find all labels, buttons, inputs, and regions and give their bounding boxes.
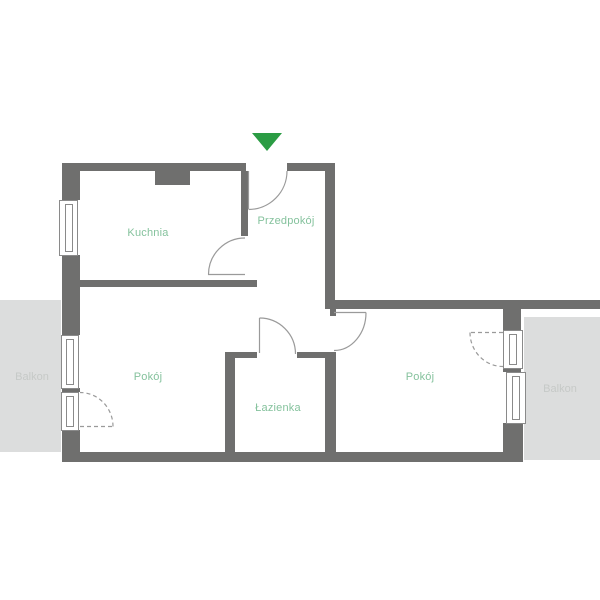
wall-room-right-left (325, 352, 336, 452)
window-kitchen (60, 201, 78, 256)
wall-kitchen-bottom (62, 280, 257, 287)
room-label-bathroom: Łazienka (255, 402, 301, 414)
wall-left-b (62, 255, 80, 335)
wall-vent-shaft (155, 171, 190, 185)
wall-right-a (503, 309, 521, 330)
doors (80, 171, 503, 427)
window-room-right (507, 373, 526, 424)
wall-kitchen-right (241, 171, 248, 236)
wall-hallway-right (325, 163, 335, 303)
wall-horizontal-long (325, 300, 600, 309)
balcony-door-frame-right (504, 331, 523, 369)
wall-bathroom-top-right (297, 352, 325, 358)
balcony-door-swing-left (80, 393, 113, 427)
room-label-room-right: Pokój (406, 371, 435, 383)
door-entrance (249, 171, 288, 210)
floor-plan-geometry (0, 0, 600, 600)
door-room-right (334, 313, 366, 351)
wall-right-b (503, 423, 523, 452)
balcony-door-swing-right (470, 333, 503, 367)
wall-left-a (62, 163, 80, 200)
wall-bottom (62, 452, 523, 462)
floor-plan: Balkon Balkon (0, 0, 600, 600)
wall-top-left (62, 163, 246, 171)
window-room-left (62, 336, 79, 389)
room-label-room-left: Pokój (134, 371, 163, 383)
door-bathroom (260, 318, 296, 354)
wall-bathroom-left (225, 352, 235, 452)
entrance-arrow-icon (252, 133, 282, 151)
room-label-hallway: Przedpokój (257, 215, 314, 227)
balcony-door-frame-left (62, 393, 79, 431)
door-kitchen (208, 238, 245, 275)
room-label-kitchen: Kuchnia (127, 227, 168, 239)
